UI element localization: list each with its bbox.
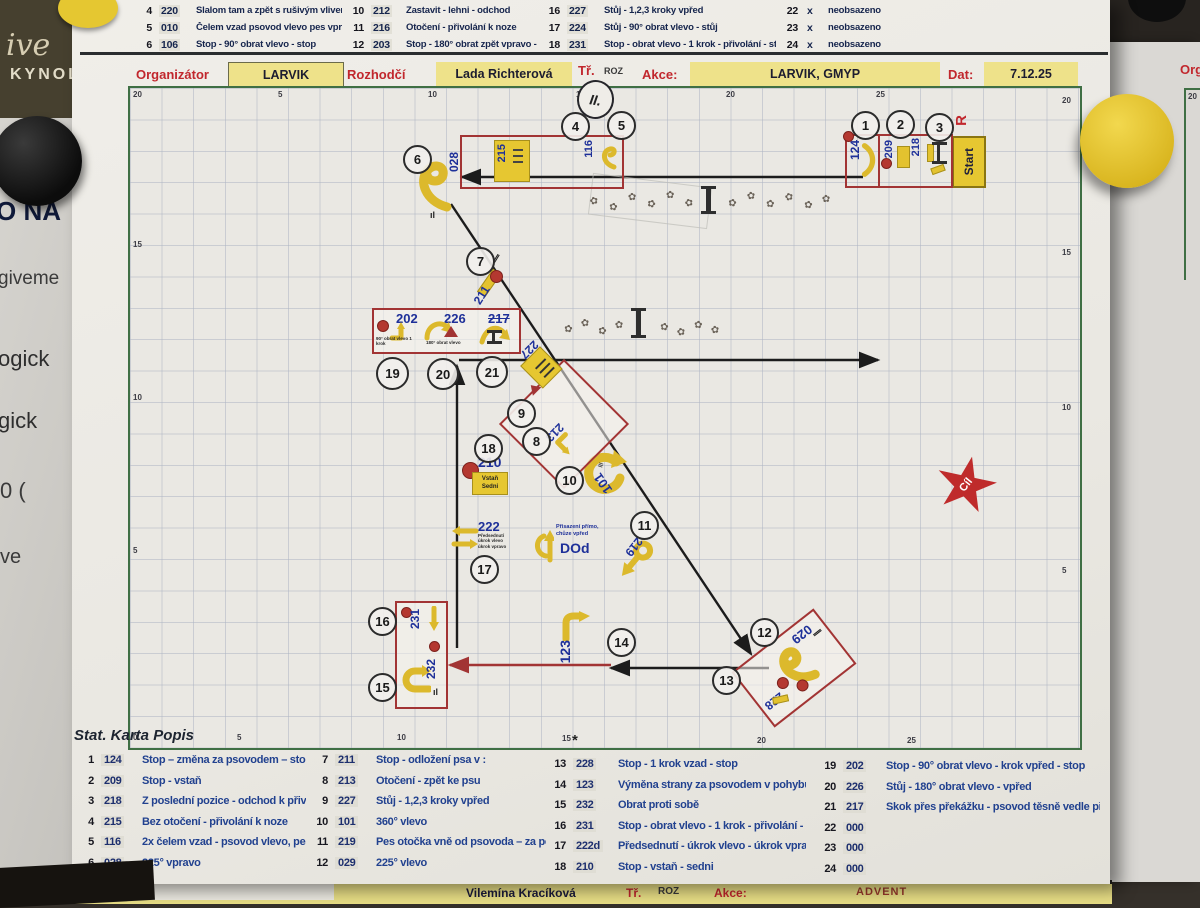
legend-sign-description: Otočení - zpět ke psu [376,775,546,787]
station-number: 11 [344,22,364,34]
cil-star: Cíl [930,450,1003,520]
paw-print-icon: ✿ [628,192,637,204]
legend-sign-code: 202 [843,760,866,772]
legend-station-number: 3 [74,795,94,807]
legend-sign-description: Stop - vstaň - sedni [618,861,806,873]
legend-sign-description: Stop - 90° obrat vlevo - krok vpřed - st… [886,760,1100,772]
legend-station-number: 11 [306,836,328,848]
sign-218-tick-icon [930,164,946,175]
paw-print-icon: ✿ [597,325,608,338]
legend-sign-code: 217 [843,801,866,813]
station-18: 18 [474,434,503,463]
legend-sign-description: Stop - obrat vlevo - 1 krok - přivolání … [618,820,806,832]
paw-print-icon: ✿ [693,320,702,332]
sign-description: Čelem vzad psovod vlevo pes vprav [196,22,342,33]
legend-station-number: 12 [306,857,328,869]
station-number: 16 [540,5,560,17]
grid-label: 20 [757,736,766,745]
station-number: 22 [776,5,798,17]
akce-value: LARVIK, GMYP [690,62,940,86]
strip-event-name: ADVENT [856,886,907,898]
legend-col-3: 13 228 Stop - 1 krok vzad - stop 14 123 … [544,754,806,877]
tick-marks-icon: ∥ [812,627,823,637]
paw-print-icon: ✿ [659,321,669,333]
station-12: 12 [750,618,779,647]
paw-print-icon: ✿ [645,198,657,211]
station-number: 18 [540,39,560,51]
sign-code: 010 [159,22,180,34]
grid-label: 25 [876,90,885,99]
paw-print-icon: ✿ [580,317,590,329]
legend-sign-description: Z poslední pozice - odchod k přivolá [142,795,306,807]
sign-116-label: 116 [584,140,595,158]
station-13: 13 [712,666,741,695]
legend-station-number: 17 [544,840,566,852]
stop-dot-icon [881,158,892,169]
legend-sign-code: 000 [843,863,866,875]
paw-print-icon: ✿ [765,199,774,211]
sign-222-label: 222 [478,519,500,534]
paw-print-icon: ✿ [589,195,600,208]
sign-231-label: 231 [409,609,421,629]
legend-station-number: 24 [812,863,836,875]
paw-print-icon: ✿ [614,320,623,332]
sign-code: 224 [567,22,588,34]
card-line [513,161,523,163]
legend-row: 7 211 Stop - odložení psa v : [306,750,546,771]
akce-label: Akce: [642,62,677,86]
legend-sign-code: 215 [101,816,124,828]
paw-trail-2: ✿ ✿ ✿ ✿ ✿ ✿ ✿ ✿ [564,308,724,344]
sign-description: Stop - 90° obrat vlevo - stop [196,39,342,50]
legend-sign-code: 029 [335,857,358,869]
station-number: 5 [132,22,152,34]
dat-label: Dat: [948,62,973,86]
station-21: 21 [476,356,508,388]
sign-description: Slalom tam a zpět s rušivým vlivem [196,5,342,16]
legend-row: 16 231 Stop - obrat vlevo - 1 krok - při… [544,816,806,837]
legend-col-4: 19 202 Stop - 90° obrat vlevo - krok vpř… [812,756,1100,879]
paw-print-icon: ✿ [684,197,695,210]
sign-code: x [805,22,815,34]
grid-label: 5 [1062,566,1066,575]
legend-row: 4 215 Bez otočení - přivolání k noze [74,812,306,833]
legend-sign-description: Skok přes překážku - psovod těsně vedle … [886,801,1100,813]
station-7: 7 [466,247,495,276]
right-sheet-grid-corner: 20 [1184,88,1200,280]
grid-label: 10 [397,733,406,742]
course-map: 20 5 10 15 20 25 20 15 10 5 15 10 5 0 5 … [128,86,1082,750]
legend-station-number: 16 [544,820,566,832]
jump-obstacle-icon [706,186,711,214]
legend-row: 8 213 Otočení - zpět ke psu [306,771,546,792]
sign-231-arrow-icon [428,606,440,632]
legend-sign-code: 124 [101,754,124,766]
legend-sign-code: 218 [101,795,124,807]
legend-station-number: 15 [544,799,566,811]
legend-sign-code: 231 [573,820,596,832]
legend-row: 9 227 Stůj - 1,2,3 kroky vpřed [306,791,546,812]
legend-sign-description: Stůj - 1,2,3 kroky vpřed [376,795,546,807]
jump-obstacle-icon [636,308,641,338]
legend-station-number: 18 [544,861,566,873]
legend-sign-description: 360° vlevo [376,816,546,828]
sign-code: 106 [159,39,180,51]
legend-sign-code: 123 [573,779,596,791]
top-table-group-4: 22 x neobsazeno 23 x neobsazeno 24 x neo… [776,2,926,53]
top-table-row: 16 227 Stůj - 1,2,3 kroky vpřed [540,2,776,19]
legend-row: 17 222d Předsednutí - úkrok vlevo - úkro… [544,836,806,857]
sign-218-label: 218 [911,138,922,156]
stop-dot-icon [490,270,503,283]
legend-sign-description: Stop - vstaň [142,775,306,787]
legend-row: 15 232 Obrat proti sobě [544,795,806,816]
top-table-row: 18 231 Stop - obrat vlevo - 1 krok - při… [540,36,776,53]
rozhodci-label: Rozhodčí [347,62,406,86]
card-line [513,149,523,151]
sign-222-arrows-icon [450,525,480,551]
tick-marks-icon: ıl [430,210,435,220]
station-14: 14 [607,628,636,657]
sign-box-19-21: 202 90° obrat vlevo 1 krok 226 180° obra… [372,308,521,354]
stop-dot-icon [429,641,440,652]
sign-description: Otočení - přivolání k noze [406,22,538,33]
legend-row: 22 000 [812,818,1100,839]
sign-215-label: 215 [497,144,508,162]
grid-label: 20 [1062,96,1071,105]
legend-station-number: 10 [306,816,328,828]
station-number: 24 [776,39,798,51]
photo-of-course-sheet: { "board": { "left_fragments": { "logo_s… [0,0,1200,900]
station-5: 5 [607,111,636,140]
legend-sign-description: Pes otočka vně od psovoda – za poh [376,836,546,848]
jump-obstacle-icon [492,330,495,344]
legend-sign-code: 000 [843,822,866,834]
sign-description: neobsazeno [828,5,926,16]
magnet-yellow [1080,94,1174,188]
sign-code: 203 [371,39,392,51]
grid-label: 10 [428,90,437,99]
sign-028-label: 028 [448,152,460,172]
legend-col-1: 1 124 Stop – změna za psovodem – stop 2 … [74,750,306,873]
sign-code: 231 [567,39,588,51]
strip-akce-label: Akce: [714,886,747,900]
jump-obstacle-icon [937,142,940,164]
organizator-value: LARVIK [228,62,344,88]
legend-sign-code: 211 [335,754,358,766]
sign-description: Stůj - 90° obrat vlevo - stůj [604,22,776,33]
station-10: 10 [555,466,584,495]
legend-sign-description: 225° vlevo [376,857,546,869]
station-2: 2 [886,110,915,139]
legend-sign-description: Obrat proti sobě [618,799,806,811]
legend-row: 2 209 Stop - vstaň [74,771,306,792]
legend-station-number: 23 [812,842,836,854]
legend-station-number: 4 [74,816,94,828]
logo-script-fragment: ive [6,28,50,63]
rozhodci-value: Lada Richterová [436,62,572,86]
grid-label: 5 [278,90,282,99]
legend-sign-code: 226 [843,781,866,793]
sign-description: Zastavit - lehni - odchod [406,5,538,16]
paper-fragment: 0 ( [0,478,26,504]
sign-code: x [805,5,815,17]
station-17: 17 [470,555,499,584]
sign-code: 220 [159,5,180,17]
top-table-group-1: 4 220 Slalom tam a zpět s rušivým vlivem… [132,2,342,53]
station-1: 1 [851,111,880,140]
paw-print-icon: ✿ [784,191,795,204]
sign-124-label: 124 [849,140,861,160]
top-table-group-2: 10 212 Zastavit - lehni - odchod 11 216 … [344,2,538,53]
legend-sign-code: 232 [573,799,596,811]
sign-description: Stop - obrat vlevo - 1 krok - přivolání … [604,39,776,50]
strip-tr-label: Tř. [626,886,641,900]
station-20: 20 [427,358,459,390]
station-9: 9 [507,399,536,428]
legend-station-number: 8 [306,775,328,787]
legend-station-number: 22 [812,822,836,834]
start-sign: Start [952,136,986,188]
legend-row: 21 217 Skok přes překážku - psovod těsně… [812,797,1100,818]
sign-209-label: 209 [884,140,895,158]
legend-row: 13 228 Stop - 1 krok vzad - stop [544,754,806,775]
sign-210-card-line2: Sedni [473,484,507,490]
station-number: 10 [344,5,364,17]
legend-row: 20 226 Stůj - 180° obrat vlevo - vpřed [812,777,1100,798]
sign-description: Stop - 180° obrat zpět vpravo - stop [406,39,538,50]
paper-fragment: giveme [0,268,59,290]
grid-label: 15 [133,240,142,249]
station-3: 3 [925,113,954,142]
sign-210-card-line1: Vstaň [473,473,507,484]
legend-sign-code: 219 [335,836,358,848]
legend-sign-code: 213 [335,775,358,787]
organizator-label: Organizátor [136,62,209,86]
legend-row: 23 000 [812,838,1100,859]
tick-marks-icon: ıl [433,687,438,697]
legend-row: 1 124 Stop – změna za psovodem – stop [74,750,306,771]
sign-code: 212 [371,5,392,17]
legend-row: 11 219 Pes otočka vně od psovoda – za po… [306,832,546,853]
dod-label: DOd [560,540,590,556]
legend-sign-code: 101 [335,816,358,828]
paw-print-icon: ✿ [608,201,618,213]
legend-sign-description: 225° vpravo [142,857,306,869]
top-table-row: 22 x neobsazeno [776,2,926,19]
station-19: 19 [376,357,409,390]
sign-description: Stůj - 1,2,3 kroky vpřed [604,5,776,16]
top-table-row: 6 106 Stop - 90° obrat vlevo - stop [132,36,342,53]
top-table-row: 10 212 Zastavit - lehni - odchod [344,2,538,19]
sign-123-label: 123 [558,640,572,663]
paper-fragment: gick [0,408,37,434]
paper-fragment: ve [0,546,21,569]
legend-station-number: 14 [544,779,566,791]
sign-209-bar-icon [897,146,910,168]
start-r-mark: R [953,115,970,126]
grid-label: 25 [907,736,916,745]
sign-226-triangle-icon [444,326,458,337]
grid-label: 20 [133,90,142,99]
legend-row: 24 000 [812,859,1100,880]
legend-station-number: 19 [812,760,836,772]
sign-222-caption: Předsednutí úkrok vlevo úkrok vpravo [478,533,512,553]
start-sign-label: Start [963,148,975,175]
legend-station-number: 13 [544,758,566,770]
top-table-row: 23 x neobsazeno [776,19,926,36]
sign-box-1-3: 124 209 218 [845,134,953,188]
legend-row: 14 123 Výměna strany za psovodem v pohyb… [544,775,806,796]
legend-sign-code: 227 [335,795,358,807]
legend-sign-description: Výměna strany za psovodem v pohybu [618,779,806,791]
legend-sign-description: Stůj - 180° obrat vlevo - vpřed [886,781,1100,793]
sign-box-4-5: 215 116 [460,135,624,189]
paw-print-icon: ✿ [803,199,813,211]
legend-sign-description: Stop - odložení psa v : [376,754,546,766]
grid-label: 10 [1062,403,1071,412]
top-table-row: 11 216 Otočení - přivolání k noze [344,19,538,36]
paw-print-icon: ✿ [746,190,756,202]
grid-label: 15 [1062,248,1071,257]
strip-tr-value: ROZ [658,886,679,897]
legend-sign-code: 228 [573,758,596,770]
cil-label: Cíl [957,476,975,494]
sign-116-curl-icon [598,143,618,171]
legend-sign-description: Stop - 1 krok vzad - stop [618,758,806,770]
legend-row: 10 101 360° vlevo [306,812,546,833]
grid-label: 10 [133,393,142,402]
paw-print-icon: ✿ [563,323,573,335]
tr-value: ROZ [604,66,623,76]
station-6: 6 [403,145,432,174]
top-table-group-3: 16 227 Stůj - 1,2,3 kroky vpřed 17 224 S… [540,2,776,53]
legend-sign-code: 116 [101,836,124,848]
legend-sign-code: 222d [573,840,603,852]
legend-sign-code: 000 [843,842,866,854]
legend-station-number: 20 [812,781,836,793]
sign-description: neobsazeno [828,39,926,50]
top-table-row: 17 224 Stůj - 90° obrat vlevo - stůj [540,19,776,36]
dod-curl-icon [528,528,554,564]
sign-232-label: 232 [425,659,437,679]
bottom-left-dark-object [0,860,155,908]
legend-row: 19 202 Stop - 90° obrat vlevo - krok vpř… [812,756,1100,777]
sign-code: x [805,39,815,51]
station-number: 23 [776,22,798,34]
right-sheet-org-fragment: Org [1180,62,1200,77]
paw-print-icon: ✿ [822,194,831,206]
grid-label: 20 [726,90,735,99]
legend-station-number: 5 [74,836,94,848]
legend-sign-code: 210 [573,861,596,873]
station-11: 11 [630,511,659,540]
legend-station-number: 2 [74,775,94,787]
logo-kynol-fragment: KYNOL [10,66,78,84]
legend-sign-description: Předsednutí - úkrok vlevo - úkrok vpravo… [618,840,806,852]
top-table-row: 12 203 Stop - 180° obrat zpět vpravo - s… [344,36,538,53]
sign-218-bar-icon [927,144,934,162]
card-line [513,155,523,157]
station-number: 6 [132,39,152,51]
legend-sign-code: 209 [101,775,124,787]
top-table-row: 24 x neobsazeno [776,36,926,53]
station-8: 8 [522,427,551,456]
legend-star: * [572,732,578,749]
strip-judge-name: Vilemína Kracíková [466,886,576,900]
sign-description: neobsazeno [828,22,926,33]
sign-210-card: Vstaň Sedni [472,472,508,495]
legend-row: 5 116 2x čelem vzad - psovod vlevo, pes … [74,832,306,853]
sign-124-arc-icon [861,140,877,180]
top-table-row: 4 220 Slalom tam a zpět s rušivým vlivem [132,2,342,19]
top-table-row: 5 010 Čelem vzad psovod vlevo pes vprav [132,19,342,36]
legend-station-number: 1 [74,754,94,766]
left-paper-fragments: O NA giveme ogick gick 0 ( ve [0,118,80,900]
legend-row: 18 210 Stop - vstaň - sedni [544,857,806,878]
dat-value: 7.12.25 [984,62,1078,86]
station-16: 16 [368,607,397,636]
station-number: 4 [132,5,152,17]
table-divider [80,52,1108,55]
dod-caption: Přisazení přímo, chůze vpřed [556,524,614,540]
right-sheet-grid-label: 20 [1188,92,1197,101]
tr-label: Tř. [578,60,595,80]
sign-code: 216 [371,22,392,34]
station-number: 12 [344,39,364,51]
paw-trail-1: ✿ ✿ ✿ ✿ ✿ ✿ ✿ ✿ ✿ ✿ ✿ ✿ [590,186,840,218]
sign-226-caption: 180° obrat vlevo [426,340,468,345]
box-divider [878,136,880,186]
paw-print-icon: ✿ [727,197,737,210]
grid-label: 5 [237,733,241,742]
station-number: 17 [540,22,560,34]
legend-sign-description: Bez otočení - přivolání k noze [142,816,306,828]
paw-print-icon: ✿ [666,190,674,201]
sign-202-caption: 90° obrat vlevo 1 krok [376,336,420,347]
legend-col-2: 7 211 Stop - odložení psa v : 8 213 Otoč… [306,750,546,873]
legend-station-number: 21 [812,801,836,813]
sign-box-15-16: 231 232 ıl [395,601,448,709]
grid-label: 15 [562,734,571,743]
legend-sign-description: 2x čelem vzad - psovod vlevo, pes vp [142,836,306,848]
legend-station-number: 9 [306,795,328,807]
sign-123-arrow-icon [558,611,592,641]
legend-sign-description: Stop – změna za psovodem – stop [142,754,306,766]
paw-print-icon: ✿ [676,326,686,339]
grid-label: 5 [133,546,137,555]
legend-row: 3 218 Z poslední pozice - odchod k přivo… [74,791,306,812]
sign-215-card: 215 [494,140,530,182]
legend-station-number: 7 [306,754,328,766]
sign-code: 227 [567,5,588,17]
legend-row: 12 029 225° vlevo [306,853,546,874]
paper-fragment: ogick [0,346,49,372]
paw-print-icon: ✿ [710,324,720,336]
legend-title: Stat. Karta Popis [74,727,194,744]
station-15: 15 [368,673,397,702]
